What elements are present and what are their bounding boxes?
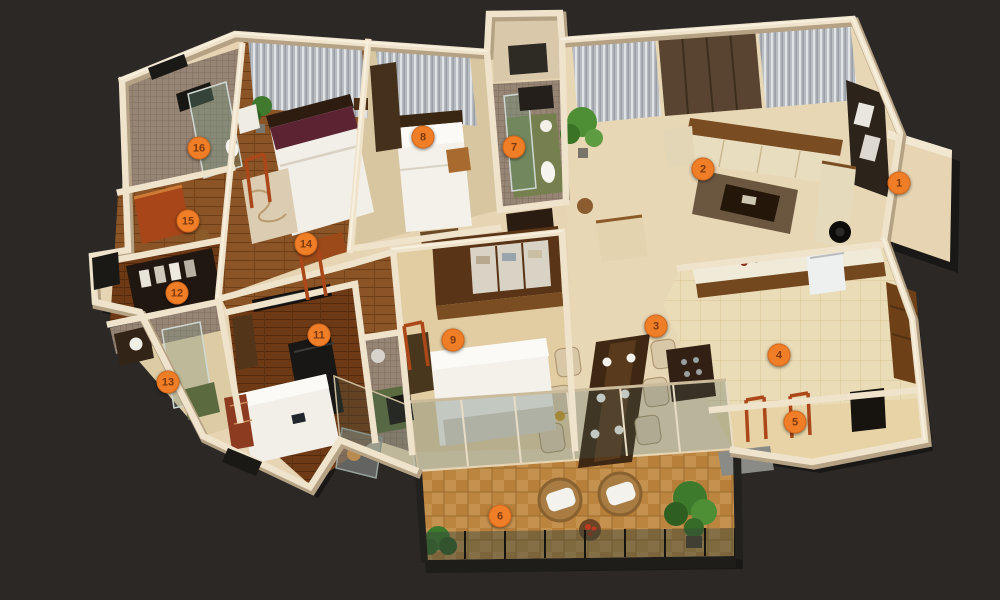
room-marker-3: 3 xyxy=(645,315,668,338)
room-marker-11: 11 xyxy=(308,324,331,347)
room-marker-6: 6 xyxy=(489,505,512,528)
room-marker-13: 13 xyxy=(157,371,180,394)
floor-plan-stage: 123456789111213141516 xyxy=(0,0,1000,600)
room-marker-15: 15 xyxy=(177,210,200,233)
room-marker-1: 1 xyxy=(888,172,911,195)
room-marker-4: 4 xyxy=(768,344,791,367)
markers-layer: 123456789111213141516 xyxy=(0,0,1000,600)
room-marker-9: 9 xyxy=(442,329,465,352)
room-marker-16: 16 xyxy=(188,137,211,160)
room-marker-8: 8 xyxy=(412,126,435,149)
room-marker-12: 12 xyxy=(166,282,189,305)
room-marker-14: 14 xyxy=(295,233,318,256)
room-marker-5: 5 xyxy=(784,411,807,434)
room-marker-7: 7 xyxy=(503,136,526,159)
room-marker-2: 2 xyxy=(692,158,715,181)
